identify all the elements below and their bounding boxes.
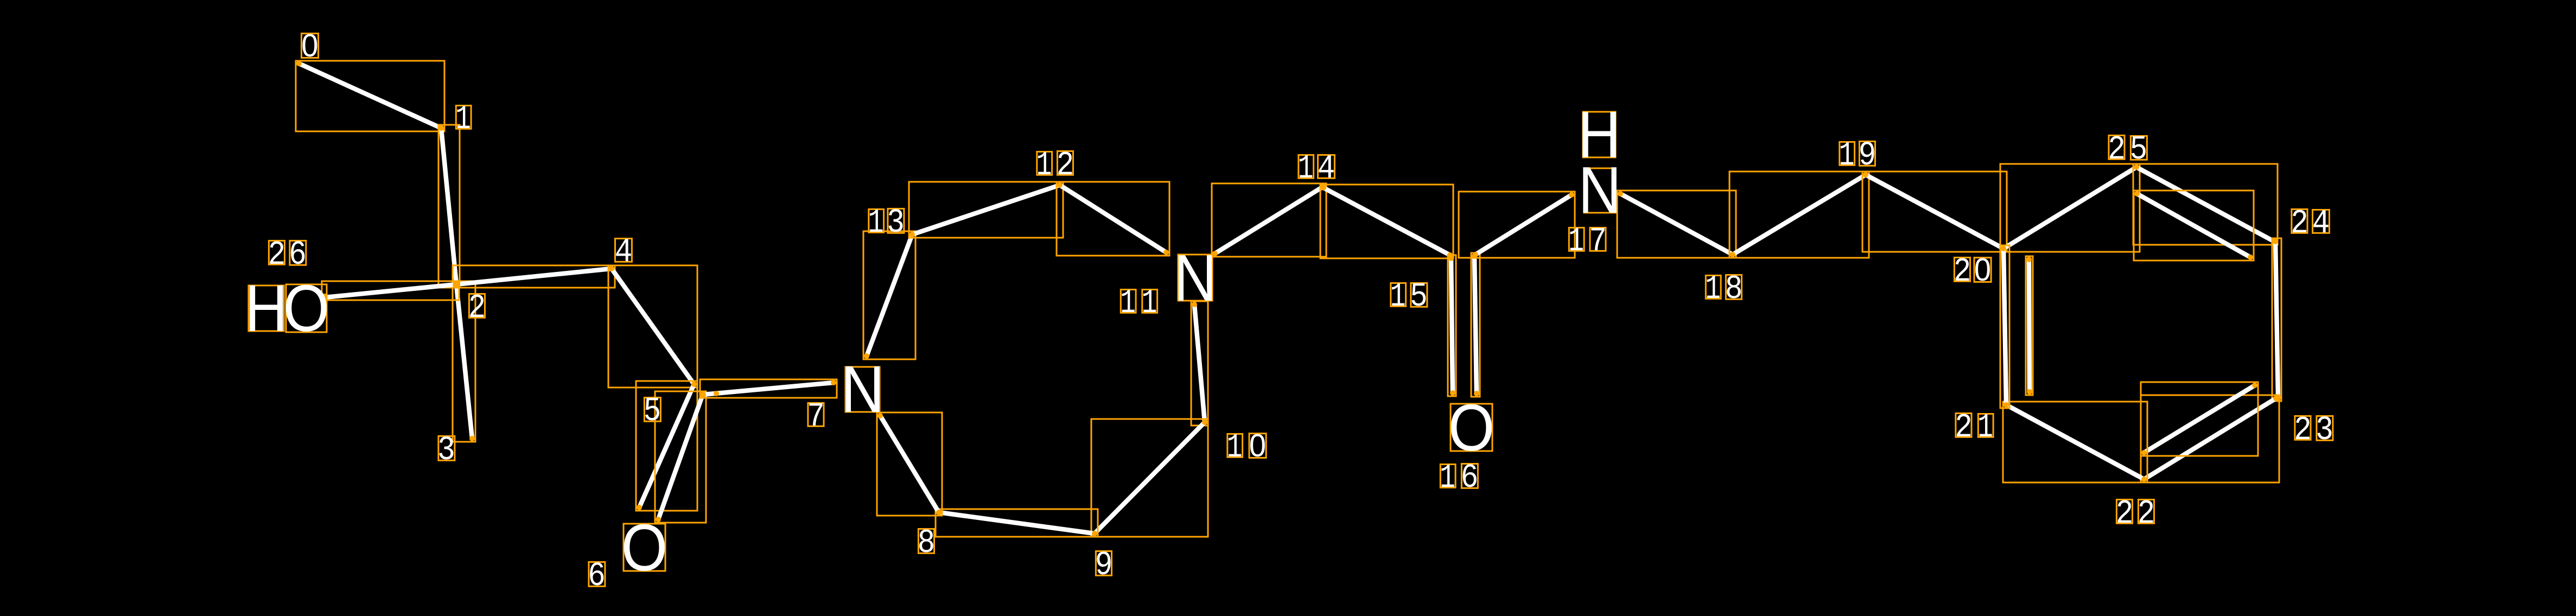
svg-text:7: 7 bbox=[1589, 222, 1607, 261]
svg-text:N: N bbox=[1578, 153, 1621, 227]
svg-text:8: 8 bbox=[918, 524, 936, 562]
svg-text:2: 2 bbox=[1955, 408, 1973, 447]
svg-text:3: 3 bbox=[887, 204, 905, 242]
svg-text:5: 5 bbox=[644, 392, 662, 430]
svg-text:1: 1 bbox=[1226, 429, 1242, 467]
svg-text:2: 2 bbox=[2116, 494, 2134, 533]
svg-text:6: 6 bbox=[588, 557, 606, 595]
svg-text:2: 2 bbox=[2138, 494, 2155, 533]
svg-text:H: H bbox=[245, 271, 288, 346]
svg-text:2: 2 bbox=[468, 289, 486, 327]
svg-text:N: N bbox=[841, 352, 884, 427]
svg-text:4: 4 bbox=[1318, 149, 1335, 188]
svg-text:2: 2 bbox=[268, 236, 286, 274]
svg-text:1: 1 bbox=[1297, 150, 1313, 188]
svg-text:4: 4 bbox=[615, 233, 633, 271]
svg-text:3: 3 bbox=[437, 431, 455, 469]
svg-text:2: 2 bbox=[2294, 411, 2312, 449]
svg-text:0: 0 bbox=[1249, 428, 1266, 464]
svg-text:3: 3 bbox=[2316, 411, 2333, 449]
svg-text:9: 9 bbox=[1859, 136, 1877, 175]
svg-text:N: N bbox=[1174, 241, 1217, 315]
svg-text:1: 1 bbox=[455, 100, 471, 138]
svg-text:1: 1 bbox=[1120, 284, 1136, 322]
svg-text:1: 1 bbox=[1839, 137, 1854, 175]
svg-text:2: 2 bbox=[2291, 204, 2308, 243]
svg-text:5: 5 bbox=[1410, 277, 1428, 316]
svg-text:6: 6 bbox=[1461, 459, 1479, 497]
svg-text:1: 1 bbox=[868, 204, 883, 242]
svg-text:1: 1 bbox=[1705, 270, 1721, 308]
svg-text:4: 4 bbox=[2312, 204, 2330, 243]
svg-text:7: 7 bbox=[807, 397, 825, 436]
svg-text:1: 1 bbox=[1977, 409, 1993, 447]
svg-text:O: O bbox=[1448, 391, 1494, 465]
svg-text:1: 1 bbox=[1440, 459, 1455, 497]
svg-text:2: 2 bbox=[1057, 146, 1074, 185]
svg-text:1: 1 bbox=[1390, 278, 1405, 316]
svg-text:1: 1 bbox=[1141, 284, 1157, 322]
svg-text:2: 2 bbox=[2108, 130, 2126, 169]
svg-text:2: 2 bbox=[1954, 252, 1971, 291]
svg-text:O: O bbox=[621, 511, 667, 585]
svg-text:0: 0 bbox=[1974, 252, 1991, 288]
svg-text:O: O bbox=[283, 271, 329, 346]
svg-text:8: 8 bbox=[1725, 270, 1743, 308]
svg-text:6: 6 bbox=[289, 236, 307, 274]
svg-text:9: 9 bbox=[1095, 546, 1113, 585]
svg-text:1: 1 bbox=[1036, 147, 1052, 185]
svg-text:5: 5 bbox=[2130, 130, 2148, 169]
svg-text:0: 0 bbox=[301, 28, 318, 64]
svg-text:1: 1 bbox=[1568, 223, 1584, 261]
